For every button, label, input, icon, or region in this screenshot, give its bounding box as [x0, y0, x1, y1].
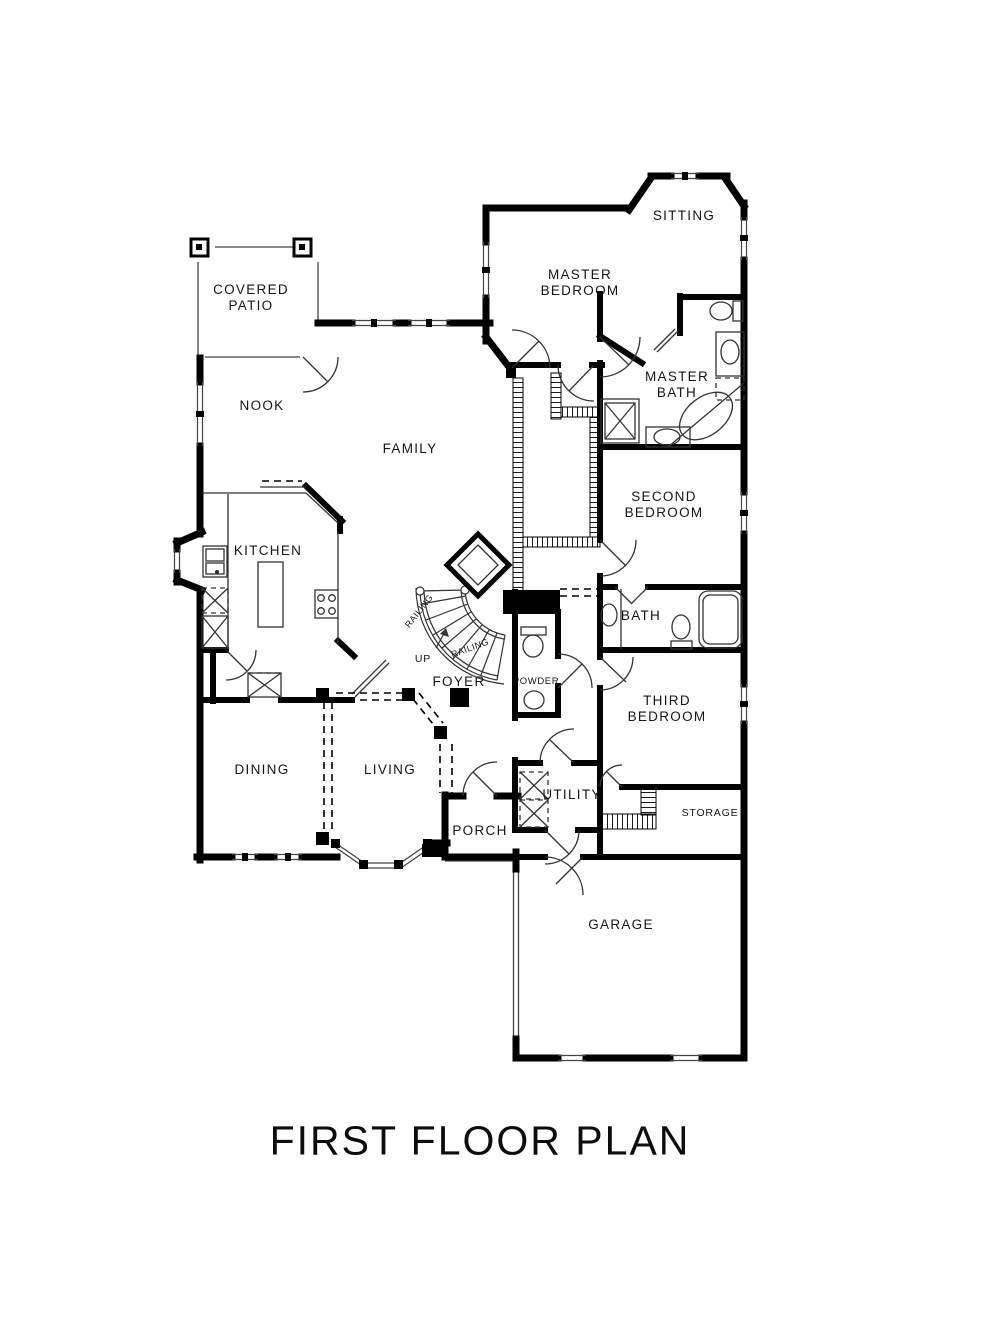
doors	[226, 329, 678, 895]
third-bedroom-line1: THIRD	[628, 693, 707, 709]
porch-stoop	[422, 844, 445, 857]
powder-fixtures	[521, 627, 546, 709]
wall-masses	[422, 362, 560, 857]
second-bedroom-line2: BEDROOM	[625, 505, 704, 521]
room-label-master-bedroom: MASTER BEDROOM	[541, 267, 620, 299]
master-bath-line2: BATH	[645, 385, 709, 401]
room-label-foyer: FOYER	[432, 674, 485, 690]
third-bedroom-line2: BEDROOM	[628, 709, 707, 725]
room-label-third-bedroom: THIRD BEDROOM	[628, 693, 707, 725]
room-label-family: FAMILY	[383, 441, 438, 457]
wc-toilet	[710, 301, 743, 321]
stair-up-label: UP	[415, 651, 431, 667]
living-bay-window	[331, 839, 432, 869]
room-label-bath: BATH	[621, 608, 661, 624]
powder-sink	[524, 691, 544, 709]
room-label-nook: NOOK	[240, 398, 285, 414]
master-bedroom-line1: MASTER	[541, 267, 620, 283]
bath-toilet	[671, 615, 692, 649]
room-label-sitting: SITTING	[653, 208, 715, 224]
covered-patio-line1: COVERED	[213, 282, 289, 298]
plan-title: FIRST FLOOR PLAN	[270, 1118, 691, 1165]
room-label-utility: UTILITY	[542, 787, 601, 803]
hall-closet	[248, 673, 281, 697]
fireplace	[447, 534, 509, 596]
room-label-living: LIVING	[364, 762, 416, 778]
shower	[601, 399, 639, 443]
bath-tub	[699, 591, 742, 648]
room-label-kitchen: KITCHEN	[234, 543, 302, 559]
room-label-storage: STORAGE	[682, 805, 739, 821]
kitchen-island	[258, 562, 283, 627]
powder-toilet	[523, 635, 543, 657]
second-bedroom-line1: SECOND	[625, 489, 704, 505]
room-label-master-bath: MASTER BATH	[645, 369, 709, 401]
pantry-cabinets	[202, 588, 228, 648]
room-label-powder: POWDER	[513, 674, 559, 690]
cooktop	[315, 590, 338, 618]
master-bath-line1: MASTER	[645, 369, 709, 385]
room-label-second-bedroom: SECOND BEDROOM	[625, 489, 704, 521]
covered-patio-line2: PATIO	[213, 298, 289, 314]
master-bedroom-line2: BEDROOM	[541, 283, 620, 299]
room-label-porch: PORCH	[452, 823, 507, 839]
room-label-garage: GARAGE	[588, 917, 654, 933]
bath-sink	[601, 604, 617, 626]
kitchen-sink	[203, 546, 227, 577]
floor-plan-page: COVERED PATIO NOOK FAMILY KITCHEN MASTER…	[0, 0, 1000, 1334]
room-label-covered-patio: COVERED PATIO	[213, 282, 289, 314]
room-label-dining: DINING	[234, 762, 289, 778]
kitchen-fixtures	[202, 487, 338, 697]
